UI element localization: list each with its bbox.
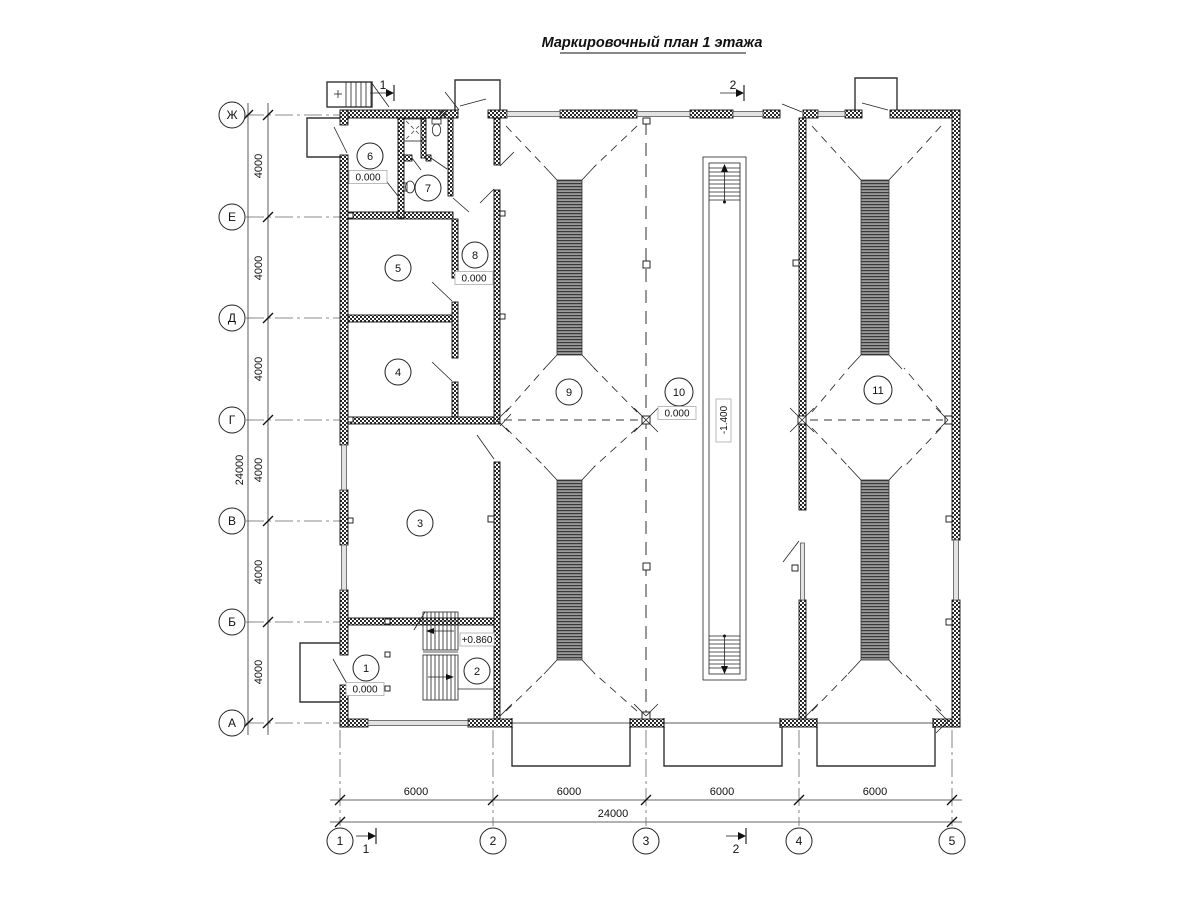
dim-row-0: 4000 bbox=[253, 154, 265, 178]
axis-col-label-2: 3 bbox=[643, 834, 650, 848]
axis-col-label-3: 4 bbox=[796, 834, 803, 848]
dim-row-1: 4000 bbox=[253, 256, 265, 280]
axis-row-label-6: А bbox=[228, 716, 236, 730]
room-2-number: 2 bbox=[474, 666, 480, 678]
dim-row-4: 4000 bbox=[253, 560, 265, 584]
gate-apron-3 bbox=[817, 727, 935, 766]
room-11-number: 11 bbox=[872, 385, 883, 397]
toilet-icon bbox=[432, 119, 441, 136]
axis-col-label-4: 5 bbox=[949, 834, 956, 848]
axis-row-label-0: Ж bbox=[226, 108, 237, 122]
svg-text:1: 1 bbox=[363, 842, 370, 856]
elevation-labels: 0.000 0.000 0.000 0.000 bbox=[346, 171, 696, 696]
section-2-bottom: 2 bbox=[726, 828, 746, 856]
inspection-pit: -1.400 bbox=[703, 157, 746, 680]
elevation-room-6: 0.000 bbox=[355, 173, 380, 184]
washbasin-icon bbox=[404, 181, 415, 193]
gate-apron-2 bbox=[664, 727, 782, 766]
section-2-top: 2 bbox=[720, 78, 744, 101]
axis-row-label-1: Е bbox=[228, 210, 236, 224]
dim-col-0: 6000 bbox=[404, 786, 428, 798]
section-marks: 1 2 1 2 bbox=[356, 78, 746, 856]
dim-col-1: 6000 bbox=[557, 786, 581, 798]
dim-col-2: 6000 bbox=[710, 786, 734, 798]
axis-row-label-2: Д bbox=[228, 311, 236, 325]
room-labels: 1 2 3 4 5 6 7 8 9 10 11 bbox=[353, 143, 892, 684]
dim-row-2: 4000 bbox=[253, 357, 265, 381]
vestibule-top-1 bbox=[455, 80, 500, 113]
dim-row-total: 24000 bbox=[234, 455, 246, 486]
axis-col-label-0: 1 bbox=[337, 834, 344, 848]
hall-9-skylights bbox=[504, 126, 641, 711]
dim-col-total: 24000 bbox=[598, 808, 629, 820]
elevation-room-8: 0.000 bbox=[461, 274, 486, 285]
room-7-number: 7 bbox=[425, 183, 431, 195]
page-title: Маркировочный план 1 этажа bbox=[542, 35, 763, 51]
dim-col-3: 6000 bbox=[863, 786, 887, 798]
room-4-number: 4 bbox=[395, 367, 401, 379]
svg-text:2: 2 bbox=[733, 842, 740, 856]
porch-left-top bbox=[307, 118, 344, 157]
dim-row-3: 4000 bbox=[253, 458, 265, 482]
gate-apron-1 bbox=[512, 727, 630, 766]
axis-row-label-4: В bbox=[228, 514, 236, 528]
hall-11-skylights bbox=[810, 126, 943, 711]
bottom-dimension-grid: 6000 6000 6000 6000 24000 1 2 3 4 5 bbox=[327, 730, 965, 854]
pit-elevation: -1.400 bbox=[719, 405, 730, 434]
svg-text:1: 1 bbox=[380, 78, 387, 92]
gates bbox=[512, 718, 933, 728]
room-9-number: 9 bbox=[566, 387, 572, 399]
section-1-bottom: 1 bbox=[356, 828, 376, 856]
room-6-number: 6 bbox=[367, 151, 373, 163]
room-1-number: 1 bbox=[363, 663, 369, 675]
axis-row-label-5: Б bbox=[228, 615, 236, 629]
room-5-number: 5 bbox=[395, 263, 401, 275]
room-10-number: 10 bbox=[673, 387, 685, 399]
stair-elevation: +0.860 bbox=[462, 635, 493, 646]
svg-text:2: 2 bbox=[730, 78, 737, 92]
room-8-number: 8 bbox=[472, 250, 478, 262]
porch-left-bottom bbox=[300, 643, 344, 702]
elevation-room-1: 0.000 bbox=[352, 685, 377, 696]
left-dimension-grid: 4000 4000 4000 4000 4000 4000 24000 Ж Е … bbox=[219, 102, 348, 736]
elevation-room-10: 0.000 bbox=[664, 409, 689, 420]
axis-col-label-1: 2 bbox=[490, 834, 497, 848]
floor-plan-drawing: Маркировочный план 1 этажа 4000 4000 400… bbox=[0, 0, 1200, 900]
axis-row-label-3: Г bbox=[229, 413, 236, 427]
drawing-title: Маркировочный план 1 этажа bbox=[542, 35, 763, 53]
room-3-number: 3 bbox=[417, 518, 423, 530]
dim-row-5: 4000 bbox=[253, 660, 265, 684]
